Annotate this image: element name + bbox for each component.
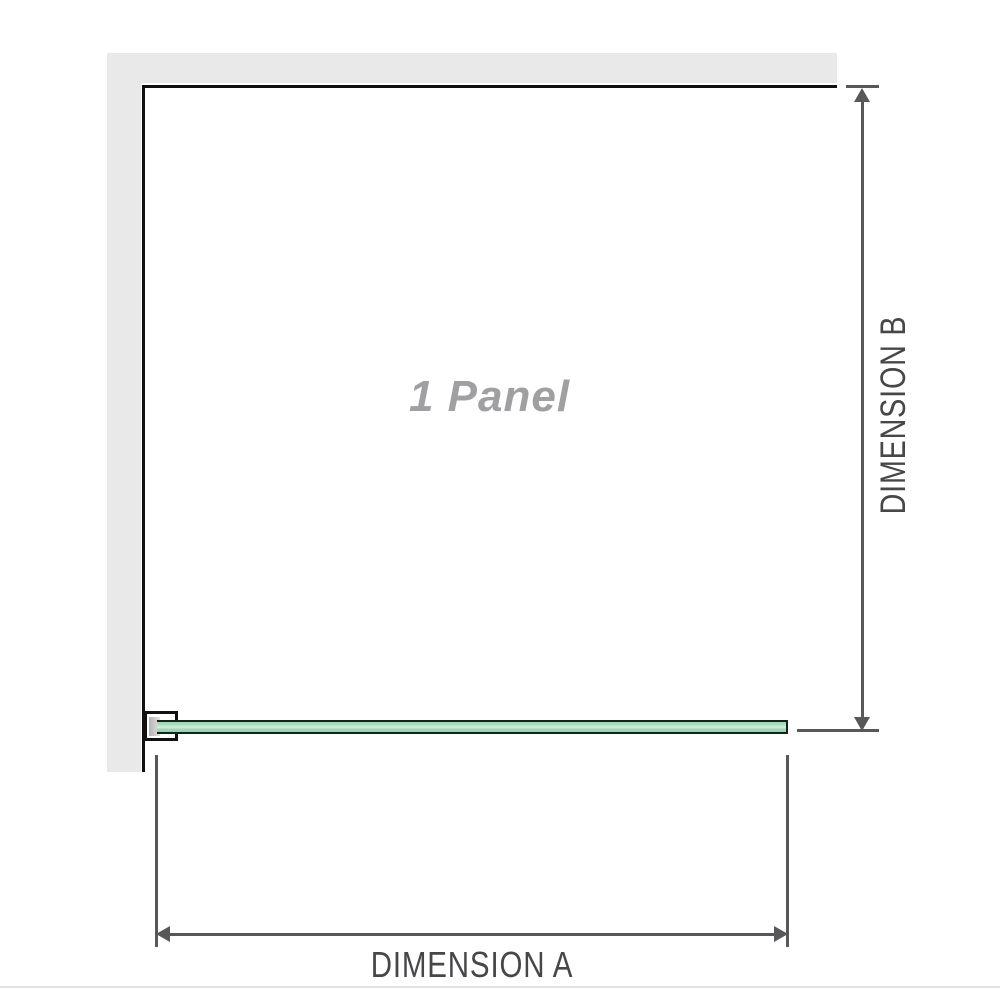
shower-panel-dimension-diagram: 1 Panel DIMENSION B DIMENSION A xyxy=(0,0,1000,1000)
glass-panel-bar xyxy=(157,720,788,734)
wall-outline-top xyxy=(142,85,837,88)
wall-top xyxy=(107,53,837,83)
dimension-a-label: DIMENSION A xyxy=(371,944,574,986)
dimension-b-line xyxy=(861,98,864,722)
wall-left xyxy=(107,53,141,772)
panel-count-label: 1 Panel xyxy=(142,372,837,422)
arrow-up-icon xyxy=(854,88,870,102)
bottom-separator xyxy=(0,986,1000,988)
arrow-right-icon xyxy=(774,926,788,942)
dimension-a-extension-right xyxy=(786,755,789,947)
dimension-a-extension-left xyxy=(155,755,158,947)
wall-outline-left xyxy=(142,85,145,772)
dimension-b-label: DIMENSION B xyxy=(874,316,914,515)
dimension-a-line xyxy=(168,933,776,936)
arrow-down-icon xyxy=(854,717,870,731)
arrow-left-icon xyxy=(156,926,170,942)
